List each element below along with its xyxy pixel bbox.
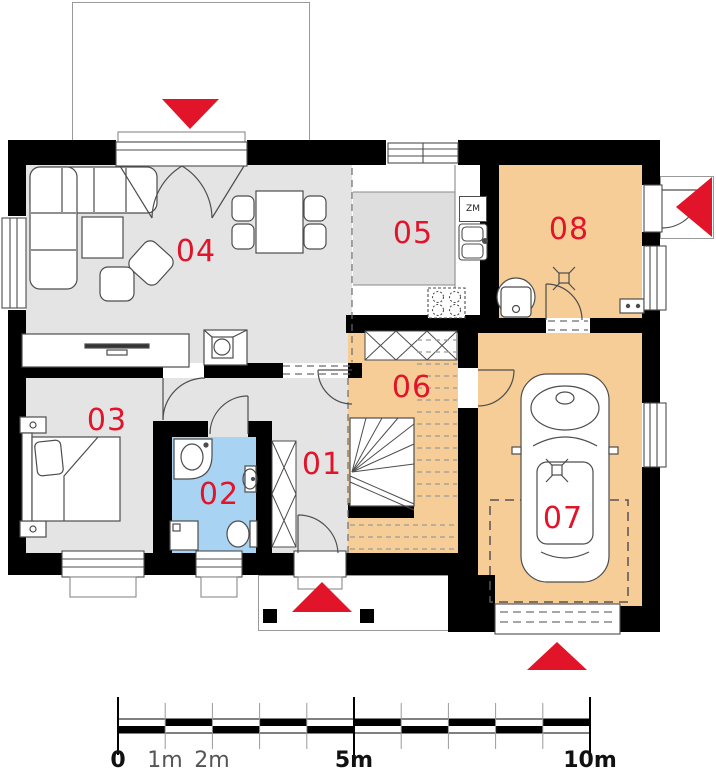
wall: [642, 140, 660, 185]
room-label-03: 03: [84, 406, 130, 436]
wall: [247, 140, 386, 165]
garage-door: [495, 604, 620, 634]
room-label-05: 05: [390, 219, 436, 249]
window: [644, 403, 666, 467]
floor-garage-vestibule: [478, 333, 642, 606]
wall: [8, 363, 163, 378]
wall: [8, 553, 62, 575]
window: [388, 143, 458, 163]
room-label-08: 08: [546, 215, 592, 245]
wall: [348, 363, 362, 378]
wall: [153, 421, 208, 437]
porch-post-right: [360, 609, 374, 623]
wall: [620, 606, 644, 632]
wall: [348, 503, 414, 518]
window: [196, 551, 242, 577]
garage-entrance-arrow-icon: [527, 642, 587, 670]
wall: [458, 140, 660, 165]
wall: [480, 163, 499, 333]
wall: [499, 318, 546, 333]
wall: [642, 232, 660, 246]
window: [644, 246, 666, 310]
window: [2, 218, 26, 308]
front-door-opening: [294, 551, 346, 577]
wall: [8, 310, 26, 575]
scale-label-2m: 2m: [185, 748, 239, 773]
wall: [458, 408, 478, 575]
front-porch: [258, 575, 452, 631]
window: [62, 551, 144, 577]
room-label-06: 06: [389, 373, 435, 403]
wall: [248, 421, 272, 437]
wall: [458, 333, 478, 368]
room-label-04: 04: [173, 237, 219, 267]
wall: [642, 310, 660, 403]
wall: [346, 315, 499, 333]
wall: [590, 318, 642, 333]
scale-label-5m: 5m: [327, 748, 381, 773]
floor-hall-06-stairs: [348, 333, 458, 553]
scale-bar: [118, 697, 590, 755]
scale-label-0: 0: [91, 748, 145, 773]
wall: [8, 140, 26, 216]
room-label-07: 07: [540, 504, 586, 534]
porch-post-left: [263, 609, 277, 623]
wall: [144, 553, 196, 575]
terrace-top: [72, 2, 310, 145]
wall: [153, 437, 172, 553]
floor-plan: ZM 04 05 08 06 01 03 02 07 0 1m 2m 5m 10…: [0, 0, 716, 784]
wall: [256, 437, 272, 553]
wall: [448, 575, 495, 632]
wall: [204, 363, 283, 378]
wall: [346, 553, 460, 575]
scale-label-1m: 1m: [138, 748, 192, 773]
window-sill: [70, 577, 136, 597]
wall: [642, 467, 660, 632]
room-label-01: 01: [299, 450, 345, 480]
window-sill: [201, 577, 237, 597]
scale-label-10m: 10m: [563, 748, 617, 773]
wall: [242, 553, 294, 575]
dishwasher-label: ZM: [459, 196, 487, 222]
room-label-02: 02: [196, 480, 242, 510]
side-porch: [660, 176, 714, 239]
